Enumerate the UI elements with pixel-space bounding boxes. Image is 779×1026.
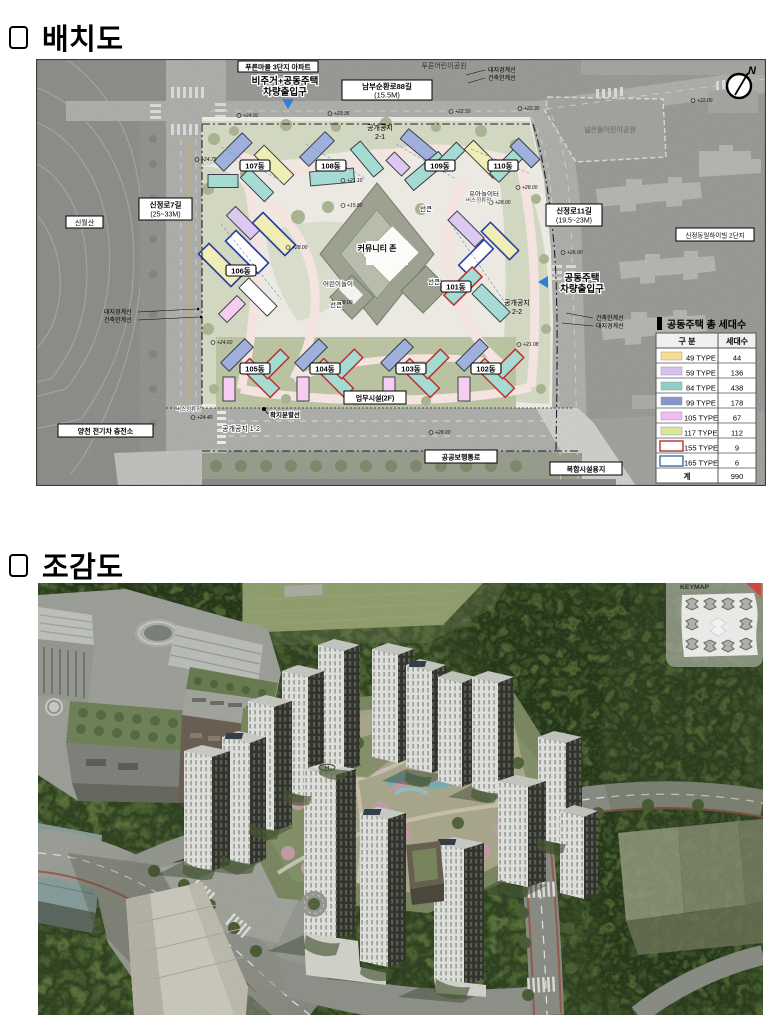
svg-text:버스정류장: 버스정류장: [466, 196, 491, 204]
svg-text:+24.92: +24.92: [243, 113, 259, 119]
svg-text:101동: 101동: [446, 283, 466, 292]
svg-text:104동: 104동: [315, 365, 335, 374]
svg-text:복합시설용지: 복합시설용지: [567, 465, 606, 474]
svg-text:넓은들어린이공원: 넓은들어린이공원: [584, 125, 636, 134]
svg-text:버스정류장: 버스정류장: [176, 405, 201, 413]
svg-text:남부순환로88길: 남부순환로88길: [362, 81, 412, 91]
svg-text:59 TYPE: 59 TYPE: [686, 369, 716, 378]
svg-text:438: 438: [731, 384, 744, 393]
svg-text:공동주택: 공동주택: [565, 272, 600, 284]
svg-text:178: 178: [731, 399, 744, 408]
svg-text:건축한계선: 건축한계선: [488, 74, 516, 82]
svg-text:49 TYPE: 49 TYPE: [686, 354, 716, 363]
svg-text:117 TYPE: 117 TYPE: [684, 429, 718, 438]
svg-text:+24.60: +24.60: [217, 340, 233, 346]
svg-text:비주거+공동주택: 비주거+공동주택: [252, 75, 319, 87]
svg-text:+26.00: +26.00: [567, 250, 583, 256]
svg-text:공개공지 1-2: 공개공지 1-2: [222, 424, 260, 433]
svg-text:165 TYPE: 165 TYPE: [684, 459, 718, 468]
svg-text:+28.00: +28.00: [495, 200, 511, 206]
svg-text:2-2: 2-2: [512, 309, 522, 316]
svg-text:(25~33M): (25~33M): [150, 212, 180, 219]
svg-text:업무시설(2F): 업무시설(2F): [356, 394, 395, 403]
svg-text:107동: 107동: [245, 162, 265, 171]
svg-text:신정로11길: 신정로11길: [556, 206, 592, 216]
svg-text:2-1: 2-1: [375, 134, 385, 141]
svg-text:차량출입구: 차량출입구: [560, 283, 604, 295]
svg-text:109동: 109동: [430, 162, 450, 171]
svg-text:84 TYPE: 84 TYPE: [686, 384, 716, 393]
svg-text:대지경계선: 대지경계선: [104, 308, 132, 316]
svg-text:108동: 108동: [321, 162, 341, 171]
svg-text:선큰: 선큰: [330, 300, 342, 309]
svg-text:110동: 110동: [494, 162, 513, 171]
svg-text:+28.00: +28.00: [292, 245, 308, 251]
svg-text:+22.50: +22.50: [455, 109, 471, 115]
svg-text:+21.10: +21.10: [347, 178, 363, 184]
svg-text:(15.5M): (15.5M): [374, 91, 400, 100]
svg-text:99 TYPE: 99 TYPE: [686, 399, 716, 408]
svg-text:112: 112: [731, 429, 743, 438]
svg-text:103동: 103동: [401, 365, 421, 374]
svg-text:유아놀이터: 유아놀이터: [469, 189, 499, 198]
svg-text:신정동일하이빌 2단지: 신정동일하이빌 2단지: [685, 231, 744, 240]
svg-text:선큰: 선큰: [428, 277, 440, 286]
svg-text:44: 44: [733, 354, 741, 363]
svg-text:990: 990: [731, 472, 744, 481]
svg-text:+24.40: +24.40: [197, 415, 213, 421]
svg-text:+22.00: +22.00: [697, 98, 713, 104]
svg-text:공개공지: 공개공지: [504, 298, 530, 307]
svg-text:9: 9: [735, 444, 739, 453]
svg-text:신월산: 신월산: [75, 218, 95, 227]
svg-text:커뮤니티 존: 커뮤니티 존: [357, 243, 397, 253]
svg-text:+22.30: +22.30: [524, 106, 540, 112]
svg-text:(19.5~23M): (19.5~23M): [556, 218, 592, 225]
svg-text:선큰: 선큰: [420, 204, 432, 213]
svg-text:+23.35: +23.35: [334, 111, 350, 117]
svg-text:공동주택 총 세대수: 공동주택 총 세대수: [667, 318, 746, 331]
svg-text:6: 6: [735, 459, 739, 468]
svg-text:푸른어린이공원: 푸른어린이공원: [421, 61, 466, 70]
svg-text:공공보행통로: 공공보행통로: [442, 453, 481, 462]
svg-text:세대수: 세대수: [726, 336, 749, 346]
svg-text:어린이놀이: 어린이놀이: [323, 279, 353, 288]
svg-text:확지분할선: 확지분할선: [270, 410, 300, 419]
svg-text:105동: 105동: [245, 365, 265, 374]
svg-text:+28.00: +28.00: [522, 185, 538, 191]
svg-text:계: 계: [684, 471, 691, 481]
svg-text:N: N: [748, 65, 757, 77]
svg-text:+15.80: +15.80: [347, 203, 363, 209]
svg-text:105 TYPE: 105 TYPE: [684, 414, 718, 423]
svg-text:+21.08: +21.08: [523, 342, 539, 348]
svg-text:대지경계선: 대지경계선: [488, 66, 516, 74]
svg-text:대지경계선: 대지경계선: [596, 322, 624, 330]
svg-text:신정로7길: 신정로7길: [150, 200, 182, 210]
svg-text:102동: 102동: [476, 365, 496, 374]
svg-text:106동: 106동: [231, 267, 251, 276]
svg-text:푸른마을 3단지 아파트: 푸른마을 3단지 아파트: [245, 63, 311, 72]
svg-text:155 TYPE: 155 TYPE: [684, 444, 718, 453]
svg-text:건축한계선: 건축한계선: [596, 314, 624, 322]
svg-text:건축한계선: 건축한계선: [104, 316, 132, 324]
svg-text:양천 전기차 충전소: 양천 전기차 충전소: [78, 427, 134, 436]
svg-text:+24.75: +24.75: [201, 157, 217, 163]
svg-text:구 분: 구 분: [679, 337, 697, 346]
svg-text:차량출입구: 차량출입구: [263, 86, 307, 98]
svg-text:+28.00: +28.00: [435, 430, 451, 436]
svg-text:136: 136: [731, 369, 744, 378]
svg-text:67: 67: [733, 414, 741, 423]
svg-text:공개공지: 공개공지: [367, 123, 393, 132]
